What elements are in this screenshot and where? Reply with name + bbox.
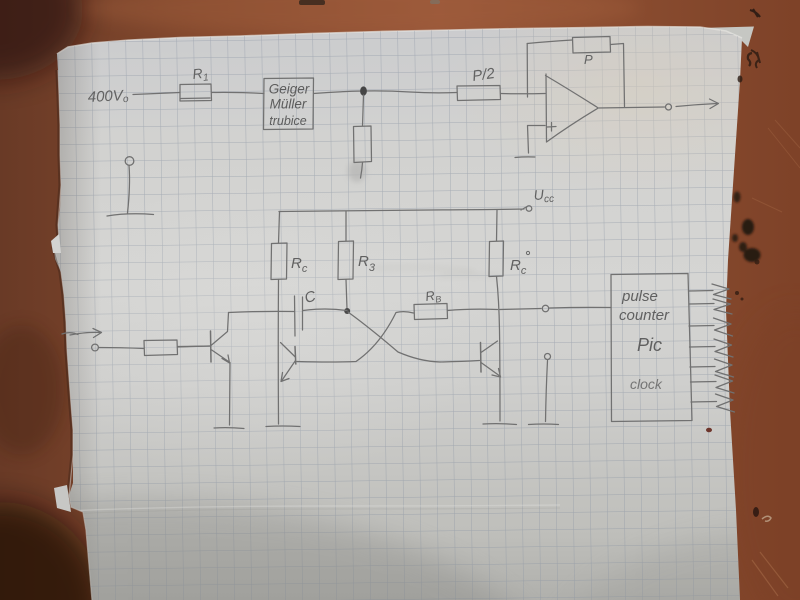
svg-text:clock: clock bbox=[630, 376, 663, 392]
svg-text:pulse: pulse bbox=[621, 288, 658, 305]
svg-text:P: P bbox=[584, 52, 593, 67]
svg-text:P/2: P/2 bbox=[471, 65, 496, 85]
svg-text:trubice: trubice bbox=[269, 114, 307, 128]
svg-text:counter: counter bbox=[619, 307, 670, 324]
svg-text:Geiger: Geiger bbox=[269, 82, 310, 97]
svg-text:Pic: Pic bbox=[637, 335, 662, 355]
svg-text:Müller: Müller bbox=[270, 97, 307, 112]
